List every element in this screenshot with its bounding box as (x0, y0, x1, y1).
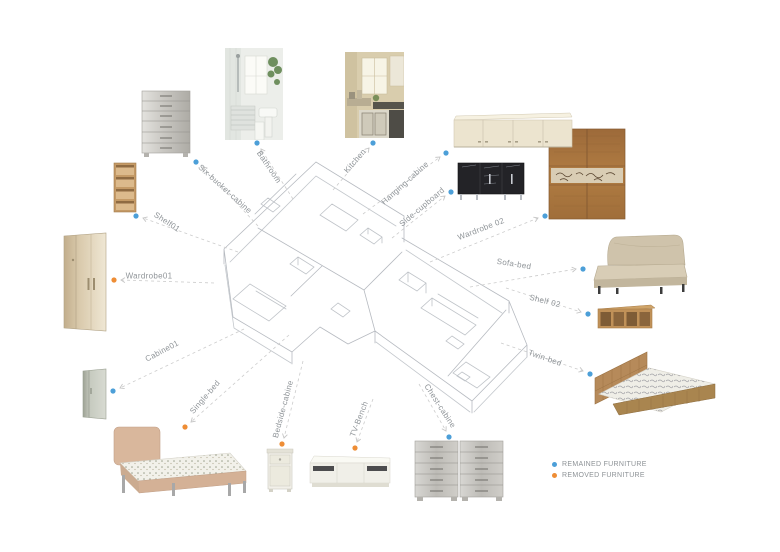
legend: REMAINED FURNITURE REMOVED FURNITURE (552, 459, 647, 481)
chest-cabine-dot (446, 434, 451, 439)
shelf-02-dot (585, 311, 590, 316)
bedside-cabine-dot (279, 441, 284, 446)
legend-row-removed: REMOVED FURNITURE (552, 470, 647, 481)
tv-bench-image (309, 455, 392, 491)
legend-remained-dot (552, 462, 557, 467)
shelf01-dot (133, 213, 138, 218)
twin-bed-image (593, 342, 717, 416)
legend-remained-label: REMAINED FURNITURE (562, 461, 647, 468)
kitchen-photo (345, 52, 404, 138)
six-bucket-cabine-dot (193, 159, 198, 164)
hanging-cabine-dot (443, 150, 448, 155)
connector-single-bed (191, 335, 289, 422)
connector-shelf01 (143, 218, 238, 252)
connector-cabine01 (120, 329, 244, 388)
furniture-plan-diagram: Six-bucket-cabine Bathroom Kitchen Hangi… (0, 0, 780, 552)
shelf-02-image (596, 304, 656, 331)
bedside-cabine-image (266, 448, 294, 492)
sofa-bed-image (592, 233, 690, 294)
hanging-cabine-image (452, 112, 574, 152)
wardrobe01-label: Wardrobe01 (126, 272, 173, 281)
connector-sofa-bed (470, 269, 576, 287)
wardrobe01-image (62, 232, 108, 334)
twin-bed-dot (587, 371, 592, 376)
wardrobe-02-dot (542, 213, 547, 218)
shelf01-image (113, 162, 137, 213)
legend-row-remained: REMAINED FURNITURE (552, 459, 647, 470)
legend-removed-dot (552, 473, 557, 478)
wardrobe01-dot (111, 277, 116, 282)
single-bed-image (112, 423, 248, 497)
tv-bench-dot (352, 445, 357, 450)
cabine01-image (81, 368, 108, 421)
plan-floor-edges (225, 176, 527, 412)
plan-furniture-blocks (233, 198, 490, 388)
sofa-bed-dot (580, 266, 585, 271)
side-cupboard-image (456, 162, 526, 201)
bathroom-dot (254, 140, 259, 145)
cabine01-dot (110, 388, 115, 393)
side-cupboard-dot (448, 189, 453, 194)
legend-removed-label: REMOVED FURNITURE (562, 472, 645, 479)
six-bucket-cabine-image (139, 90, 193, 158)
kitchen-dot (370, 140, 375, 145)
chest-cabine-image (413, 440, 505, 502)
bathroom-photo (225, 48, 283, 140)
